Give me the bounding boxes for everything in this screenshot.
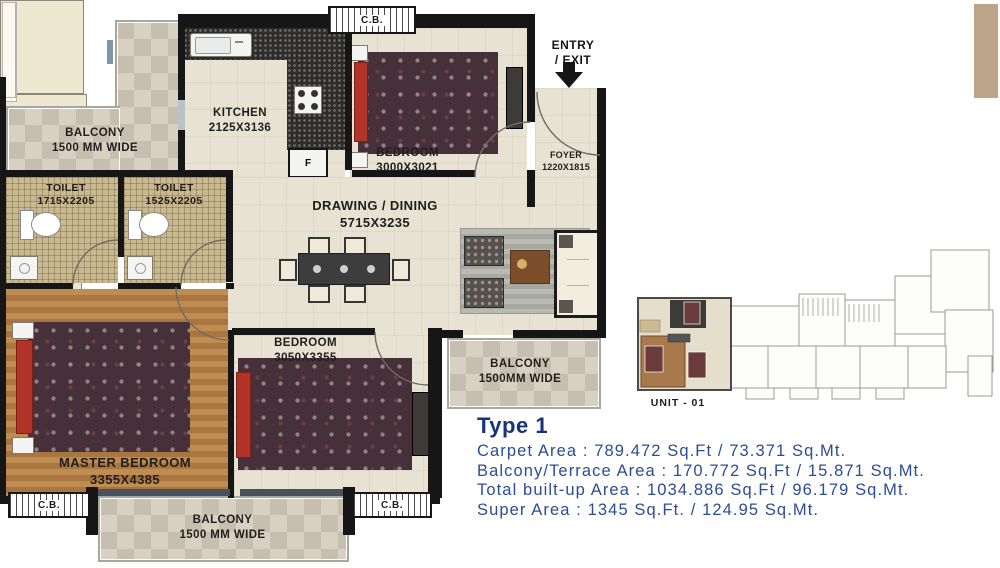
bedroom-top-rug xyxy=(358,52,498,154)
wall xyxy=(527,170,535,207)
key-plan xyxy=(628,236,1000,416)
entry-exit-label: ENTRY/ EXIT xyxy=(538,38,608,68)
wall xyxy=(178,14,185,100)
armchair xyxy=(464,278,504,308)
master-headboard xyxy=(16,340,33,434)
dining-chair xyxy=(308,285,330,303)
wall xyxy=(226,170,233,282)
fridge-label: F xyxy=(305,158,311,169)
toilet-right-label: TOILET1525X2205 xyxy=(124,182,224,209)
wall xyxy=(0,170,232,177)
wall xyxy=(118,283,181,289)
dining-chair xyxy=(279,259,297,281)
key-plan-unit-01 xyxy=(638,298,731,390)
bedroom-bottom-headboard xyxy=(236,372,251,458)
dining-table xyxy=(298,253,390,285)
wall xyxy=(0,173,6,285)
drawing-dining-label: DRAWING / DINING5715X3235 xyxy=(295,198,455,231)
wall xyxy=(0,285,6,503)
balcony-right-label: BALCONY1500MM WIDE xyxy=(455,357,585,386)
cupboard-top: C.B. xyxy=(328,6,416,34)
bedroom-top-headboard xyxy=(354,62,368,142)
bedroom-bottom-window-sill xyxy=(240,489,343,496)
armchair xyxy=(464,236,504,266)
floorplan-page: F xyxy=(0,0,1000,568)
kitchen-sink xyxy=(190,33,252,57)
wall xyxy=(228,330,234,498)
toilet-left-wc-bowl xyxy=(31,212,61,237)
kitchen-hob xyxy=(294,86,322,114)
area-info-block: Type 1 Carpet Area : 789.472 Sq.Ft / 73.… xyxy=(477,413,997,520)
cupboard-bottom-right-label: C.B. xyxy=(378,500,406,511)
cupboard-bottom-right: C.B. xyxy=(352,492,432,518)
cupboard-bottom-left-label: C.B. xyxy=(35,500,63,511)
balcony-gate-detail xyxy=(107,40,113,64)
kitchen-window xyxy=(178,100,185,130)
toilet-right-wc-bowl xyxy=(139,212,169,237)
coffee-table xyxy=(510,250,550,284)
bedroom-top-nightstand-1 xyxy=(350,45,368,61)
balcony-area-line: Balcony/Terrace Area : 170.772 Sq.Ft / 1… xyxy=(477,462,997,482)
balcony-top-left-label: BALCONY1500 MM WIDE xyxy=(20,126,170,155)
toilet-right-sink xyxy=(127,256,153,280)
toilet-left-label: TOILET1715X2205 xyxy=(16,182,116,209)
balcony-bottom-label: BALCONY1500 MM WIDE xyxy=(145,513,300,542)
wall xyxy=(428,328,442,498)
dining-chair xyxy=(344,237,366,255)
type-title: Type 1 xyxy=(477,413,997,439)
cupboard-top-label: C.B. xyxy=(358,15,386,26)
bedroom-bottom-rug xyxy=(238,358,412,470)
wall xyxy=(442,330,463,338)
fridge: F xyxy=(288,148,328,178)
builtup-area-line: Total built-up Area : 1034.886 Sq.Ft / 9… xyxy=(477,481,997,501)
wall xyxy=(226,283,234,289)
carpet-area-line: Carpet Area : 789.472 Sq.Ft / 73.371 Sq.… xyxy=(477,442,997,462)
cupboard-bottom-left: C.B. xyxy=(8,492,90,518)
master-nightstand-1 xyxy=(12,322,34,339)
dining-chair xyxy=(308,237,330,255)
wall xyxy=(597,88,606,330)
wall xyxy=(232,328,375,335)
master-bedroom-label: MASTER BEDROOM3355X4385 xyxy=(40,455,210,488)
bedroom-bottom-label: BEDROOM3050X3355 xyxy=(248,336,363,365)
toilet-left-sink xyxy=(10,256,38,280)
wall xyxy=(513,330,606,338)
bedroom-top-wardrobe xyxy=(506,67,523,129)
super-area-line: Super Area : 1345 Sq.Ft. / 124.95 Sq.Mt. xyxy=(477,501,997,521)
kitchen-label: KITCHEN2125X3136 xyxy=(195,106,285,135)
wall xyxy=(527,14,535,122)
master-bedroom-rug xyxy=(28,322,190,452)
key-plan-unit-label: UNIT - 01 xyxy=(633,397,723,409)
bedroom-top-label: BEDROOM3000X3021 xyxy=(350,146,465,175)
master-nightstand-2 xyxy=(12,437,34,454)
wall xyxy=(0,283,73,289)
master-window-sill xyxy=(98,489,230,496)
dining-chair xyxy=(392,259,410,281)
wall xyxy=(0,77,6,173)
foyer-label: FOYER1220X1815 xyxy=(534,150,598,173)
sofa xyxy=(554,230,602,318)
dining-chair xyxy=(344,285,366,303)
